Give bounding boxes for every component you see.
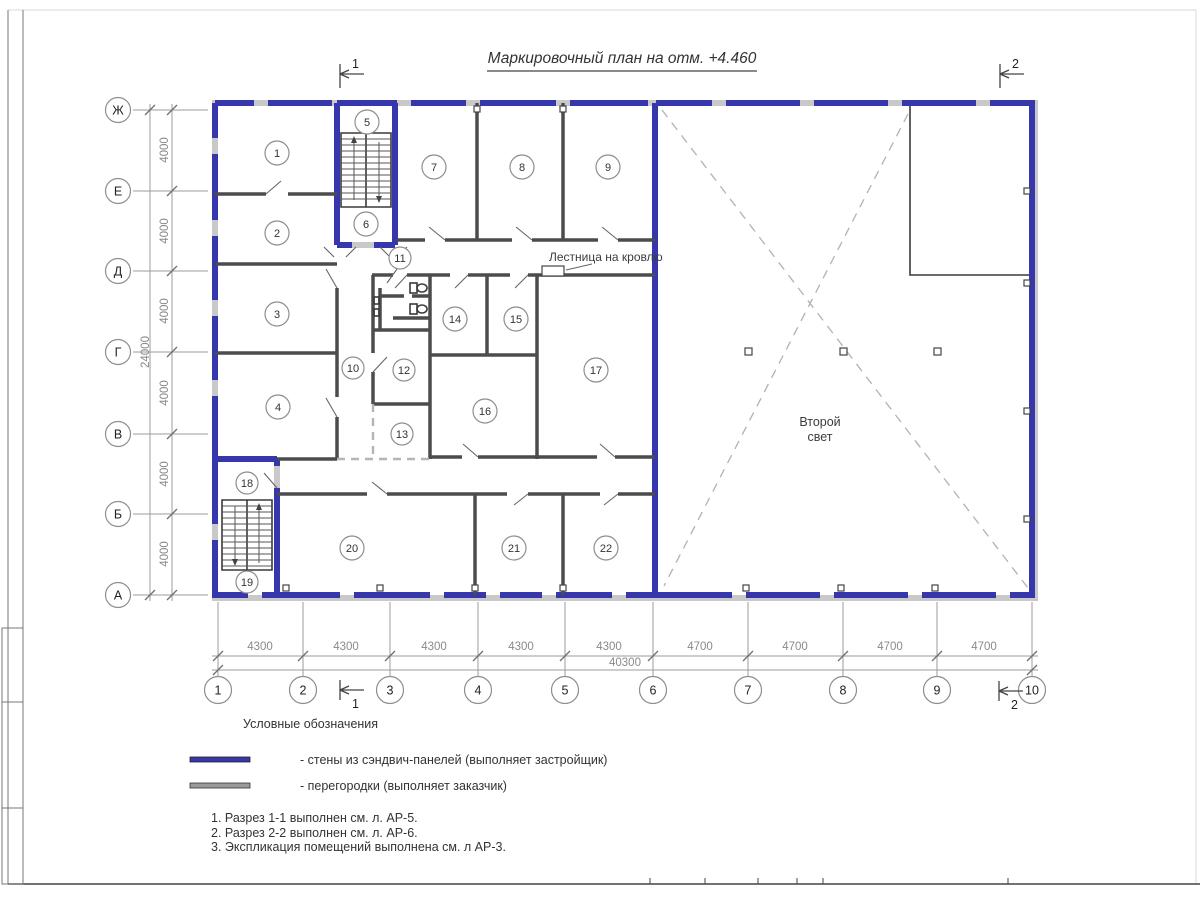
margin-box-2 <box>2 702 23 808</box>
room-label-7: 7 <box>431 162 437 174</box>
section-mark-1-top: 1 <box>352 57 359 71</box>
roof-ladder-label: Лестница на кровлю <box>549 250 663 264</box>
drawing-sheet: Маркировочный план на отм. +4.460 <box>0 0 1200 900</box>
room-label-4: 4 <box>275 402 281 414</box>
dim-left-1: 4000 <box>159 137 171 163</box>
dim-left-4: 4000 <box>159 380 171 406</box>
room-label-14: 14 <box>449 314 461 326</box>
axis-letter-e: Е <box>114 185 122 199</box>
room-label-15: 15 <box>510 314 522 326</box>
axis-letter-g: Г <box>115 346 122 360</box>
wc-fixtures <box>374 283 427 316</box>
axis-number-10: 10 <box>1025 684 1039 698</box>
roof-ladder-leader <box>566 264 592 270</box>
axis-letter-d: Д <box>114 265 123 279</box>
note-3: 3. Экспликация помещений выполнена см. л… <box>211 840 506 854</box>
dim-bottom-3: 4300 <box>421 641 447 653</box>
hall-opening-outline <box>910 106 1029 275</box>
second-light-label-1: Второй <box>799 415 840 429</box>
axis-letter-b: Б <box>114 508 122 522</box>
axis-number-4: 4 <box>475 684 482 698</box>
axis-number-2: 2 <box>300 684 307 698</box>
room-label-2: 2 <box>274 228 280 240</box>
note-1: 1. Разрез 1-1 выполнен см. л. АР-5. <box>211 811 418 825</box>
room-label-1: 1 <box>274 148 280 160</box>
legend-swatch-sandwich-wall <box>190 757 250 762</box>
axis-letter-a: А <box>114 589 123 603</box>
dim-bottom-7: 4700 <box>782 641 808 653</box>
axis-grid-bottom: 1 2 3 4 5 6 7 8 9 10 4300 4300 4300 4300… <box>205 602 1046 704</box>
dim-bottom-8: 4700 <box>877 641 903 653</box>
axis-number-7: 7 <box>745 684 752 698</box>
legend-item-sandwich-wall: - стены из сэндвич-панелей (выполняет за… <box>300 753 607 767</box>
floor-plan-canvas: Маркировочный план на отм. +4.460 <box>0 0 1200 900</box>
dim-bottom-2: 4300 <box>333 641 359 653</box>
note-2: 2. Разрез 2-2 выполнен см. л. АР-6. <box>211 826 418 840</box>
room-label-21: 21 <box>508 543 520 555</box>
room-label-17: 17 <box>590 365 602 377</box>
second-light-hall: Второй свет <box>662 106 1029 588</box>
room-label-5: 5 <box>364 117 370 129</box>
axis-number-3: 3 <box>387 684 394 698</box>
legend-item-partition: - перегородки (выполняет заказчик) <box>300 779 507 793</box>
staircase-bottom <box>222 500 272 570</box>
axis-number-6: 6 <box>650 684 657 698</box>
dim-bottom-4: 4300 <box>508 641 534 653</box>
dim-left-2: 4000 <box>159 218 171 244</box>
axis-grid-left: Ж Е Д Г В Б А 4000 4000 4000 4000 4000 4… <box>106 98 209 608</box>
axis-letter-zh: Ж <box>112 104 124 118</box>
dim-left-3: 4000 <box>159 298 171 324</box>
axis-number-5: 5 <box>562 684 569 698</box>
margin-box-1 <box>2 628 23 702</box>
legend-heading: Условные обозначения <box>243 717 378 731</box>
dim-bottom-6: 4700 <box>687 641 713 653</box>
notes: 1. Разрез 1-1 выполнен см. л. АР-5. 2. Р… <box>211 811 506 854</box>
dim-bottom-5: 4300 <box>596 641 622 653</box>
drawing-title: Маркировочный план на отм. +4.460 <box>488 50 757 67</box>
room-label-3: 3 <box>274 309 280 321</box>
room-label-6: 6 <box>363 219 369 231</box>
section-marks: 1 2 1 2 <box>340 57 1024 712</box>
roof-ladder: Лестница на кровлю <box>542 250 663 276</box>
dim-bottom-total: 40300 <box>609 657 641 669</box>
section-mark-1-bottom: 1 <box>352 697 359 711</box>
roof-hatch-symbol <box>542 266 564 276</box>
axis-number-8: 8 <box>840 684 847 698</box>
staircase-top <box>341 133 391 207</box>
second-light-label-2: свет <box>807 430 832 444</box>
axis-number-9: 9 <box>934 684 941 698</box>
dim-bottom-1: 4300 <box>247 641 273 653</box>
section-mark-2-bottom: 2 <box>1011 698 1018 712</box>
dim-left-5: 4000 <box>159 461 171 487</box>
room-label-19: 19 <box>241 577 253 589</box>
dim-left-6: 4000 <box>159 541 171 567</box>
room-label-9: 9 <box>605 162 611 174</box>
margin-box-3 <box>2 808 23 884</box>
room-label-11: 11 <box>394 253 405 265</box>
room-label-22: 22 <box>600 543 612 555</box>
axis-letter-v: В <box>114 428 122 442</box>
room-label-10: 10 <box>347 363 359 375</box>
dim-bottom-9: 4700 <box>971 641 997 653</box>
room-label-18: 18 <box>241 478 253 490</box>
dashed-partition-room13 <box>337 404 430 459</box>
section-mark-2-top: 2 <box>1012 57 1019 71</box>
axis-number-1: 1 <box>215 684 222 698</box>
legend: Условные обозначения - стены из сэндвич-… <box>190 717 607 793</box>
legend-swatch-partition <box>190 783 250 788</box>
room-label-12: 12 <box>398 365 410 377</box>
room-label-20: 20 <box>346 543 358 555</box>
room-label-16: 16 <box>479 406 491 418</box>
room-label-13: 13 <box>396 429 408 441</box>
dim-left-total: 24000 <box>140 336 152 368</box>
room-label-8: 8 <box>519 162 525 174</box>
